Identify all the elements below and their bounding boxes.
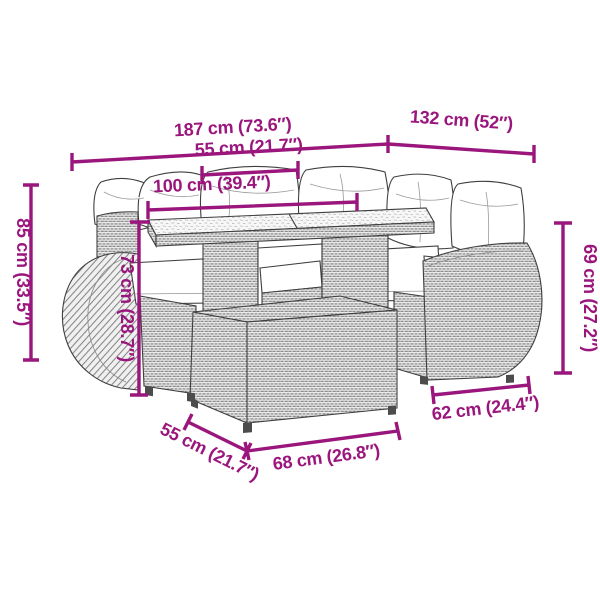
sofa-base-left: [140, 296, 196, 394]
ottoman-left: [190, 312, 247, 423]
dimension-label: 55 cm (21.7″): [194, 134, 303, 160]
dimension-label: 85 cm (33.5″): [13, 218, 33, 326]
dimension-arm-section-width: 62 cm (24.4″): [431, 376, 541, 424]
dimension-ottoman-width: 68 cm (26.8″): [245, 422, 400, 474]
right-armrest: [423, 243, 542, 380]
dimension-label: 62 cm (24.4″): [431, 392, 541, 424]
dimension-back-height: 85 cm (33.5″): [13, 185, 39, 360]
dimension-label: 73 cm (28.7″): [117, 254, 137, 362]
diagram-canvas: 187 cm (73.6″) 132 cm (52″) 55 cm (21.7″…: [0, 0, 600, 600]
ottoman-front: [247, 310, 397, 423]
dimension-right-section-width: 132 cm (52″): [388, 106, 534, 163]
dimension-label: 69 cm (27.2″): [580, 244, 600, 352]
dimension-arm-height: 69 cm (27.2″): [554, 223, 600, 373]
furniture-dimension-diagram: 187 cm (73.6″) 132 cm (52″) 55 cm (21.7″…: [0, 0, 600, 600]
sofa-base-right: [394, 292, 428, 378]
dimension-label: 132 cm (52″): [409, 106, 514, 133]
